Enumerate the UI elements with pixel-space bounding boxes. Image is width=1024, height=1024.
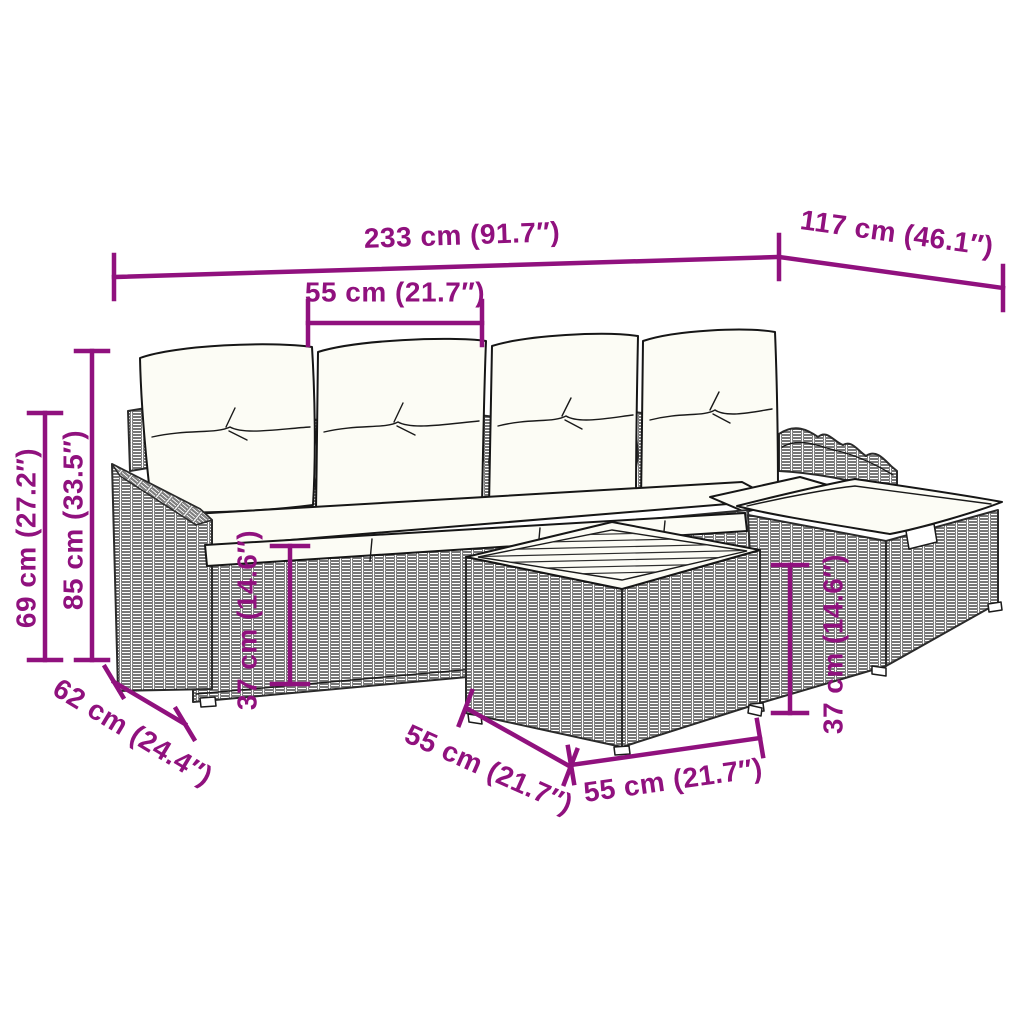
dim-line	[114, 257, 779, 277]
dim-label-overall-depth: 117 cm (46.1″)	[798, 204, 995, 262]
dim-label-overall-width: 233 cm (91.7″)	[363, 216, 560, 254]
dim-label-table-depth: 55 cm (21.7″)	[400, 718, 577, 820]
back-cushion-2	[316, 339, 486, 512]
footstool-foot-right	[988, 602, 1002, 612]
dim-label-backrest-height: 85 cm (33.5″)	[58, 430, 89, 610]
table-foot-front	[614, 746, 630, 755]
dim-tick	[568, 747, 574, 783]
dim-overall-depth: 117 cm (46.1″)	[779, 204, 1003, 310]
dim-label-armrest-height: 69 cm (27.2″)	[11, 448, 42, 628]
product-dimension-diagram: 233 cm (91.7″) 117 cm (46.1″) 55 cm (21.…	[0, 0, 1024, 1024]
footstool-foot-front	[872, 666, 886, 676]
dim-line	[779, 257, 1003, 288]
dim-tick	[176, 709, 194, 739]
dim-label-seat-height-left: 37 cm (14.6″)	[232, 530, 263, 710]
dim-armrest-height: 69 cm (27.2″)	[11, 413, 62, 660]
table-left-face	[466, 557, 622, 747]
diagram-canvas: 233 cm (91.7″) 117 cm (46.1″) 55 cm (21.…	[0, 0, 1024, 1024]
dim-backrest-height: 85 cm (33.5″)	[58, 351, 109, 660]
footstool-right-face	[886, 510, 998, 666]
dim-seat-width: 55 cm (21.7″)	[305, 277, 485, 346]
dim-label-footstool-height: 37 cm (14.6″)	[818, 554, 849, 734]
dim-tick	[757, 720, 763, 756]
dim-label-seat-width: 55 cm (21.7″)	[305, 277, 485, 308]
back-cushion-3	[489, 334, 638, 509]
sofa-foot	[200, 697, 216, 707]
